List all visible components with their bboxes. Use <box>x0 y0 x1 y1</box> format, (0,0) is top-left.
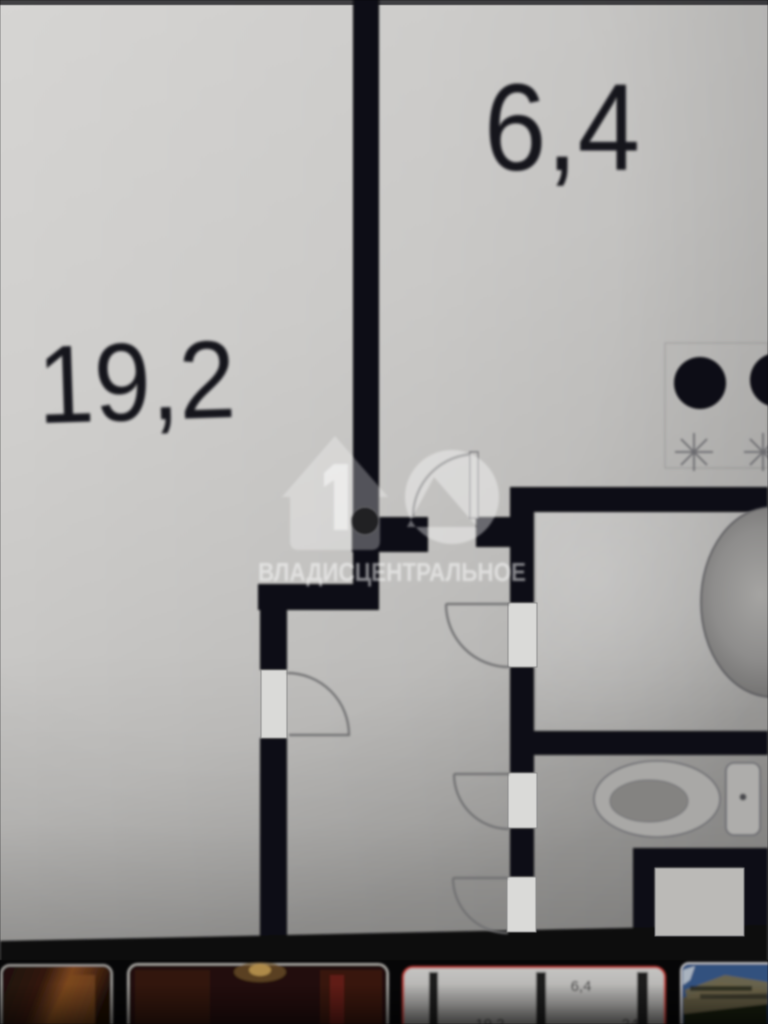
svg-text:19,2: 19,2 <box>36 318 238 447</box>
svg-text:ВЛАДИСЦЕНТРАЛЬНОЕ: ВЛАДИСЦЕНТРАЛЬНОЕ <box>258 557 526 587</box>
svg-text:6,4: 6,4 <box>484 60 640 197</box>
